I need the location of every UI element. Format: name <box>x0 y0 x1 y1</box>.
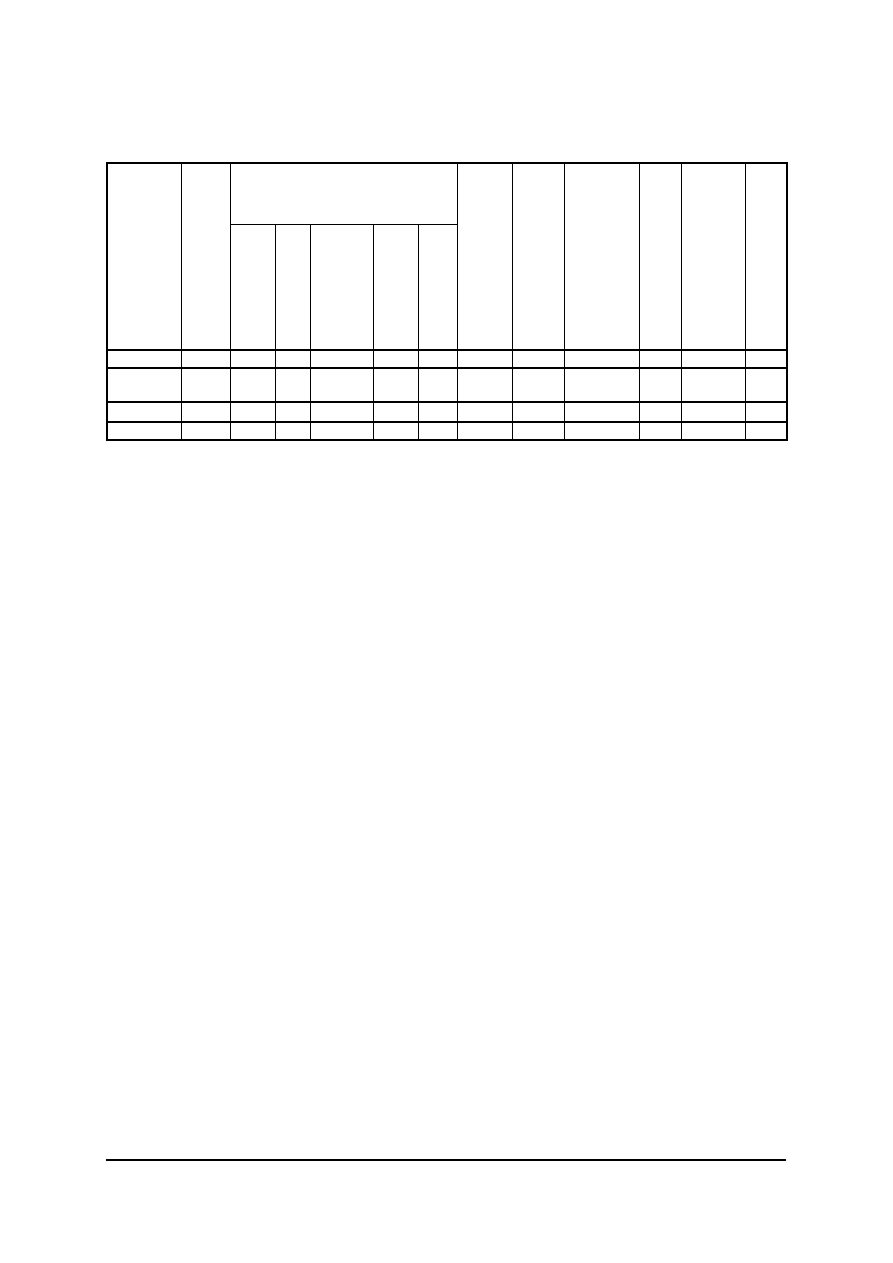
table-row <box>107 368 787 402</box>
sub-header-cell <box>310 224 373 350</box>
body-cell <box>107 368 181 402</box>
sub-header-cell <box>418 224 457 350</box>
body-cell <box>418 368 457 402</box>
body-cell <box>275 350 310 368</box>
body-cell <box>745 422 787 440</box>
body-cell <box>681 402 745 422</box>
body-cell <box>310 350 373 368</box>
body-cell <box>230 402 275 422</box>
body-cell <box>681 350 745 368</box>
body-cell <box>457 422 512 440</box>
body-cell <box>512 402 564 422</box>
body-cell <box>310 422 373 440</box>
sub-header-cell <box>275 224 310 350</box>
body-cell <box>181 350 230 368</box>
body-cell <box>181 402 230 422</box>
header-cell <box>181 163 230 350</box>
body-cell <box>373 402 418 422</box>
sub-header-cell <box>373 224 418 350</box>
header-cell <box>457 163 512 350</box>
body-cell <box>512 422 564 440</box>
body-cell <box>457 368 512 402</box>
body-cell <box>745 402 787 422</box>
body-cell <box>745 350 787 368</box>
header-cell <box>512 163 564 350</box>
body-cell <box>373 350 418 368</box>
body-cell <box>107 422 181 440</box>
body-cell <box>457 350 512 368</box>
body-cell <box>681 422 745 440</box>
body-cell <box>564 402 639 422</box>
body-cell <box>418 402 457 422</box>
table-row <box>107 422 787 440</box>
empty-data-table <box>106 162 788 441</box>
body-cell <box>275 402 310 422</box>
table-row <box>107 350 787 368</box>
footer-rule <box>106 1159 786 1161</box>
body-cell <box>639 368 681 402</box>
body-cell <box>373 422 418 440</box>
body-cell <box>107 350 181 368</box>
body-cell <box>745 368 787 402</box>
body-cell <box>181 422 230 440</box>
body-cell <box>107 402 181 422</box>
header-cell <box>639 163 681 350</box>
body-cell <box>418 350 457 368</box>
body-cell <box>230 350 275 368</box>
body-cell <box>230 368 275 402</box>
body-cell <box>275 422 310 440</box>
body-cell <box>373 368 418 402</box>
body-cell <box>564 368 639 402</box>
body-cell <box>564 350 639 368</box>
body-cell <box>512 368 564 402</box>
body-cell <box>310 368 373 402</box>
body-cell <box>639 422 681 440</box>
table-row <box>107 402 787 422</box>
header-cell <box>681 163 745 350</box>
body-cell <box>310 402 373 422</box>
body-cell <box>457 402 512 422</box>
body-cell <box>230 422 275 440</box>
header-cell <box>745 163 787 350</box>
body-cell <box>418 422 457 440</box>
header-cell <box>564 163 639 350</box>
body-cell <box>639 402 681 422</box>
sub-header-cell <box>230 224 275 350</box>
body-cell <box>275 368 310 402</box>
body-cell <box>181 368 230 402</box>
body-cell <box>564 422 639 440</box>
header-cell <box>107 163 181 350</box>
body-cell <box>681 368 745 402</box>
document-page <box>0 0 893 1263</box>
merged-group-header-cell <box>230 163 457 224</box>
body-cell <box>639 350 681 368</box>
body-cell <box>512 350 564 368</box>
